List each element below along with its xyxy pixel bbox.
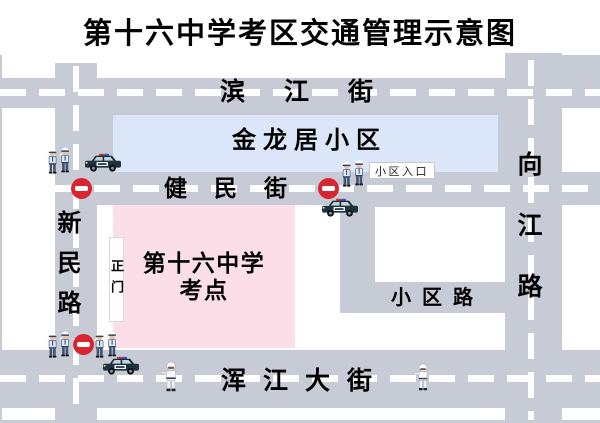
xinmin-road-label: 新民路	[54, 210, 78, 330]
main-gate-label: 正门	[110, 259, 123, 301]
building-block	[375, 207, 505, 282]
hunjiang-avenue-label: 浑江大街	[221, 369, 389, 394]
binjiang-street-label: 滨江街	[220, 80, 412, 105]
traffic-officer-icon	[414, 363, 432, 392]
police-officers-icon	[46, 329, 72, 359]
exam-site-label-line1: 第十六中学	[143, 250, 266, 277]
jianmin-street-label: 健民街	[164, 177, 314, 200]
police-officers-icon	[46, 145, 72, 175]
police-car-icon	[102, 356, 140, 376]
police-officers-icon	[93, 329, 119, 359]
police-car-icon	[321, 198, 359, 218]
residential-entrance-sign: 小区入口	[369, 162, 435, 179]
northeast-corner-block	[562, 55, 600, 78]
xiangjiang-road-label: 向江路	[515, 151, 540, 334]
no-entry-sign-icon	[318, 178, 339, 199]
police-officers-icon	[340, 158, 366, 188]
traffic-officer-icon	[161, 361, 181, 393]
exam-site-label-line2: 考点	[180, 277, 229, 304]
exam-site-block: 第十六中学 考点	[113, 205, 295, 348]
main-gate-box: 正门	[109, 237, 124, 322]
no-entry-sign-icon	[73, 334, 94, 355]
no-entry-sign-icon	[71, 178, 92, 199]
police-car-icon	[84, 153, 122, 173]
traffic-diagram-canvas: 第十六中学考区交通管理示意图 第十六中学 考点 滨江街 健民街 浑江大街 小区路…	[0, 0, 600, 423]
residential-entrance-label: 小区入口	[375, 163, 429, 179]
diagram-title: 第十六中学考区交通管理示意图	[0, 10, 600, 52]
xiaoqu-road-label: 小区路	[391, 288, 484, 308]
left-edge-strip	[0, 55, 2, 423]
residential-area-label: 金龙居小区	[232, 129, 387, 153]
